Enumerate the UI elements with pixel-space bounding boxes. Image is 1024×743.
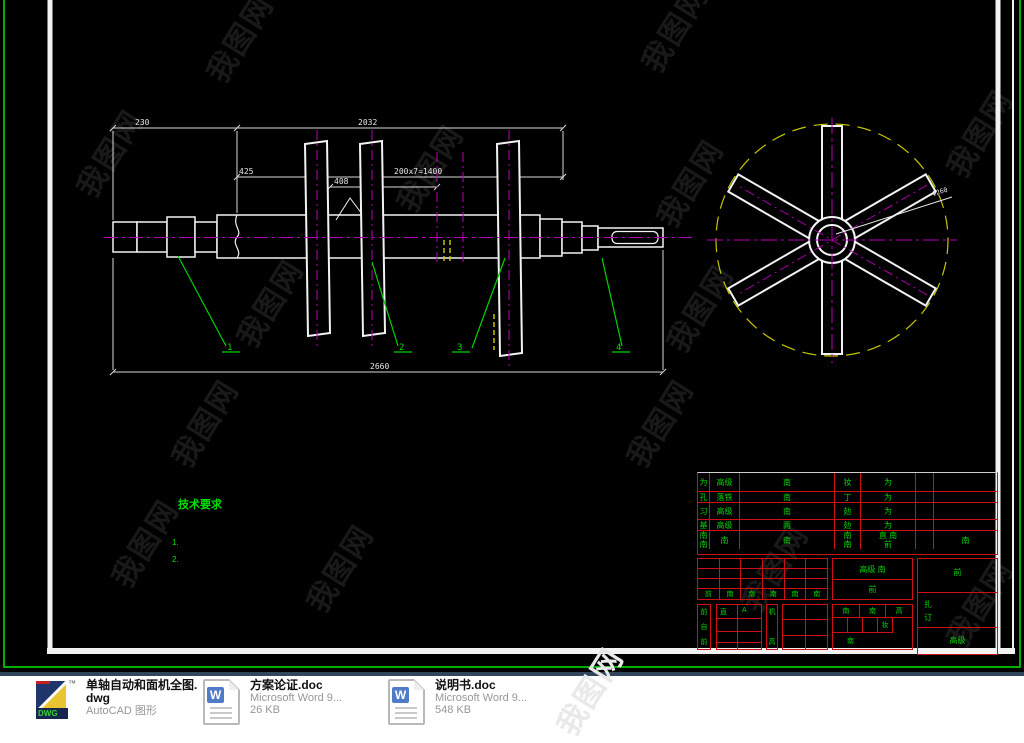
title-block-name-box: 前 扎 订 高级 xyxy=(917,558,998,655)
dim-230: 230 xyxy=(135,118,150,127)
title-block-revision-table: 为高级南妆为 孔落铁南丁为 习高级南攰为 基高级两攰为 南 南南南南 南直 南 … xyxy=(697,472,998,555)
tech-req-title: 技术要求 xyxy=(178,497,223,511)
page-fold xyxy=(414,679,425,690)
file-name: 方案论证.doc xyxy=(250,679,342,692)
dwg-file-icon: DWG xyxy=(36,681,66,719)
svg-text:4: 4 xyxy=(616,343,621,353)
word-logo: W xyxy=(392,687,409,703)
page-fold xyxy=(229,679,240,690)
title-block-grid-table: 前南南南南南 xyxy=(697,558,828,600)
title-block: 为高级南妆为 孔落铁南丁为 习高级南攰为 基高级两攰为 南 南南南南 南直 南 … xyxy=(697,472,998,655)
callout-numbers: 1 2 3 4 xyxy=(227,343,621,353)
tech-requirements: 技术要求 1. 2. xyxy=(172,497,223,564)
shaft-outline xyxy=(113,198,663,258)
title-block-stage-box: 高级 南 前 xyxy=(832,558,913,600)
file-item-doc1[interactable]: W 方案论证.doc Microsoft Word 9... 26 KB xyxy=(203,679,342,725)
title-block-box-d xyxy=(782,604,828,650)
svg-text:1.: 1. xyxy=(172,538,179,547)
file-size: 548 KB xyxy=(435,704,527,716)
screenshot-stage: 我图网 我图网 我图网 我图网 我图网 我图网 我图网 我图网 我图网 我图网 … xyxy=(0,0,1024,743)
dim-2660: 2660 xyxy=(370,362,389,371)
word-logo: W xyxy=(207,687,224,703)
file-name: 说明书.doc xyxy=(435,679,527,692)
dim-pitch: 200x7=1400 xyxy=(394,167,442,176)
trademark-symbol: ™ xyxy=(68,679,76,719)
file-name: 单轴自动和面机全图. dwg xyxy=(86,679,197,705)
title-block-box-c: 机高 xyxy=(766,604,778,650)
dim-2032: 2032 xyxy=(358,118,377,127)
file-item-dwg[interactable]: DWG ™ 单轴自动和面机全图. dwg AutoCAD 图形 xyxy=(36,679,197,719)
title-block-weight-box: 南南高 妆 南 xyxy=(832,604,913,650)
title-block-box-a: 前自前 xyxy=(697,604,711,650)
dim-408: 408 xyxy=(334,177,349,186)
file-item-doc2[interactable]: W 说明书.doc Microsoft Word 9... 548 KB xyxy=(388,679,527,725)
word-file-icon: W xyxy=(203,679,240,725)
svg-text:1: 1 xyxy=(227,343,232,353)
file-type: AutoCAD 图形 xyxy=(86,705,197,717)
impeller-view: Φ260 xyxy=(707,118,957,363)
file-type: Microsoft Word 9... xyxy=(250,692,342,704)
dim-425: 425 xyxy=(239,167,254,176)
svg-text:2: 2 xyxy=(399,343,404,353)
file-type: Microsoft Word 9... xyxy=(435,692,527,704)
svg-text:3: 3 xyxy=(457,343,462,353)
callout-leaders xyxy=(178,256,630,352)
svg-text:2.: 2. xyxy=(172,555,179,564)
file-size: 26 KB xyxy=(250,704,342,716)
file-bar: 我图网 DWG ™ 单轴自动和面机全图. dwg AutoCAD 图形 W xyxy=(0,676,1024,743)
word-file-icon: W xyxy=(388,679,425,725)
title-block-box-b: 直 A xyxy=(716,604,762,650)
